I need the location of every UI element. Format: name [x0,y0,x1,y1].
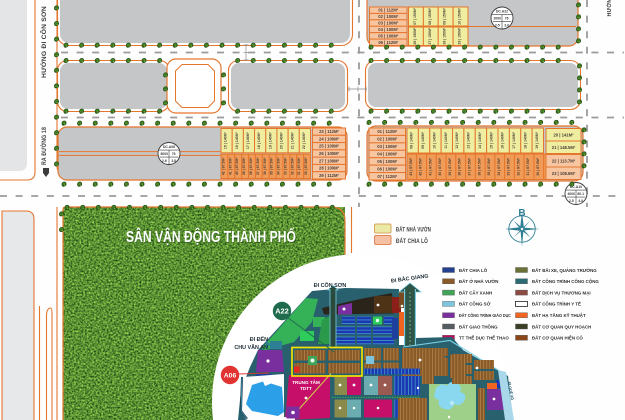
svg-text:ĐI CÔN SƠN: ĐI CÔN SƠN [314,281,347,289]
svg-text:28 | 150M²: 28 | 150M² [443,27,447,45]
svg-text:CHU VĂN AN: CHU VĂN AN [234,344,268,351]
svg-text:24 | 100M²: 24 | 100M² [319,136,340,141]
svg-text:27 | 100M²: 27 | 100M² [319,158,340,163]
svg-text:37 | 87.5M²: 37 | 87.5M² [256,157,260,176]
svg-text:TT THỂ DỤC THỂ THAO: TT THỂ DỤC THỂ THAO [459,336,509,341]
svg-text:ĐẤT CHIA LÔ: ĐẤT CHIA LÔ [459,268,488,273]
svg-text:A22: A22 [275,307,289,316]
svg-text:16 | 140M²: 16 | 140M² [235,132,239,150]
svg-text:16 | 140M²: 16 | 140M² [501,131,505,149]
svg-text:10 | 150M²: 10 | 150M² [458,7,462,25]
svg-text:ĐẤT DỊCH VỤ THƯƠNG MẠI: ĐẤT DỊCH VỤ THƯƠNG MẠI [532,290,591,295]
svg-text:36 | 87.5M²: 36 | 87.5M² [477,157,481,176]
svg-text:8000: 8000 [161,152,169,156]
svg-text:26 | 100M²: 26 | 100M² [319,151,340,156]
svg-text:33 | 87.5M²: 33 | 87.5M² [283,157,287,176]
svg-text:04 | 100M²: 04 | 100M² [377,152,398,157]
svg-text:30 | 87.5M²: 30 | 87.5M² [304,157,308,176]
svg-text:11 | 140M²: 11 | 140M² [444,131,448,148]
svg-text:34 | 87.5M²: 34 | 87.5M² [497,157,501,176]
svg-text:17 | 140M²: 17 | 140M² [246,132,250,150]
svg-text:14 | 140M²: 14 | 140M² [478,131,482,149]
svg-text:ĐI ĐẾN: ĐI ĐẾN [250,336,268,343]
svg-text:3.0: 3.0 [504,23,509,27]
svg-text:HƯỚNG ĐI CÔN SƠN: HƯỚNG ĐI CÔN SƠN [39,6,48,78]
svg-text:ĐẤT HẠ TẦNG KỸ THUẬT: ĐẤT HẠ TẦNG KỸ THUẬT [532,313,586,318]
svg-text:09 | 140M²: 09 | 140M² [421,131,425,149]
svg-text:01 | 112M²: 01 | 112M² [378,8,398,13]
svg-text:A06: A06 [224,373,237,380]
svg-text:ĐẤT CƠ QUAN HIỆN CÓ: ĐẤT CƠ QUAN HIỆN CÓ [532,336,583,341]
svg-text:20 | 141M²: 20 | 141M² [553,132,574,137]
svg-text:ĐẤT CÔNG TRÌNH CÔNG CỘNG: ĐẤT CÔNG TRÌNH CÔNG CỘNG [532,279,599,284]
svg-text:18 | 140M²: 18 | 140M² [257,132,261,150]
svg-text:31 | 87.5M²: 31 | 87.5M² [526,157,530,176]
svg-text:30 | 87.5M²: 30 | 87.5M² [536,157,540,176]
svg-text:40 | 87.5M²: 40 | 87.5M² [235,157,239,176]
svg-text:2-5: 2-5 [495,23,500,27]
svg-text:01 | 112M²: 01 | 112M² [377,129,397,134]
svg-text:2-5: 2-5 [569,199,574,203]
svg-text:37 | 87.5M²: 37 | 87.5M² [467,157,471,176]
svg-text:ĐẤT BÃI XE, QUẢNG TRƯỜNG: ĐẤT BÃI XE, QUẢNG TRƯỜNG [532,268,597,273]
svg-text:35 | 87.5M²: 35 | 87.5M² [487,157,491,176]
svg-text:41 | 87.5M²: 41 | 87.5M² [228,157,232,176]
svg-text:05 | 100M²: 05 | 100M² [377,159,398,164]
svg-text:19 | 140M²: 19 | 140M² [535,131,539,149]
svg-text:TDTT: TDTT [300,386,312,391]
svg-text:38 | 87.5M²: 38 | 87.5M² [458,157,462,176]
svg-text:32 | 87.5M²: 32 | 87.5M² [290,157,294,176]
svg-text:ĐẤT Ở NHÀ VƯỜN: ĐẤT Ở NHÀ VƯỜN [459,279,498,284]
svg-text:ĐẤT GIAO THÔNG: ĐẤT GIAO THÔNG [459,324,498,329]
svg-text:21 | 148.5M²: 21 | 148.5M² [552,145,576,150]
svg-text:40 | 87.5M²: 40 | 87.5M² [438,157,442,176]
svg-text:35 | 87.5M²: 35 | 87.5M² [270,157,274,176]
svg-text:08 | 140M²: 08 | 140M² [410,131,414,149]
svg-text:04 | 100M²: 04 | 100M² [378,27,399,32]
svg-text:15 | 140M²: 15 | 140M² [224,132,228,150]
svg-text:20 | 140M²: 20 | 140M² [280,132,284,150]
svg-text:02 | 100M²: 02 | 100M² [377,137,398,142]
svg-text:22 | 113.7M²: 22 | 113.7M² [552,158,576,163]
svg-text:ĐẤT CÔNG SỞ: ĐẤT CÔNG SỞ [459,302,491,307]
svg-text:29 | 150M²: 29 | 150M² [458,27,462,45]
svg-text:4000: 4000 [568,192,576,196]
svg-text:2-6: 2-6 [162,159,167,163]
svg-text:15 | 140M²: 15 | 140M² [489,131,493,149]
svg-text:43 | 87.5M²: 43 | 87.5M² [409,157,413,176]
svg-text:10 | 140M²: 10 | 140M² [432,131,436,149]
svg-text:SÂN VẬN ĐỘNG THÀNH PHỐ: SÂN VẬN ĐỘNG THÀNH PHỐ [126,226,296,246]
svg-text:TRUNG TÂM: TRUNG TÂM [292,379,320,385]
svg-text:08 | 150M²: 08 | 150M² [428,7,432,25]
svg-text:42 | 87.5M²: 42 | 87.5M² [221,157,225,176]
svg-text:41 | 87.5M²: 41 | 87.5M² [428,157,432,176]
svg-text:25 | 100M²: 25 | 100M² [319,144,340,149]
svg-text:3.8: 3.8 [171,159,176,163]
svg-text:36 | 87.5M²: 36 | 87.5M² [263,157,267,176]
svg-text:06 | 100M²: 06 | 100M² [377,166,398,171]
svg-text:23 | 108.6M²: 23 | 108.6M² [552,171,576,176]
svg-text:ĐẤT CƠ QUAN QUY HOẠCH: ĐẤT CƠ QUAN QUY HOẠCH [532,324,591,329]
svg-text:ĐẤT CÔNG TRÌNH GIÁO DỤC: ĐẤT CÔNG TRÌNH GIÁO DỤC [459,313,512,318]
svg-text:39 | 87.5M²: 39 | 87.5M² [242,157,246,176]
svg-text:34 | 87.5M²: 34 | 87.5M² [277,157,281,176]
svg-text:76: 76 [505,17,509,21]
svg-text:05 | 100M²: 05 | 100M² [378,33,399,38]
svg-text:03 | 100M²: 03 | 100M² [378,21,399,26]
svg-text:27 | 150M²: 27 | 150M² [428,27,432,45]
svg-text:06 | 112M²: 06 | 112M² [378,40,398,45]
svg-text:39 | 87.5M²: 39 | 87.5M² [448,157,452,176]
svg-text:RA ĐƯỜNG 18: RA ĐƯỜNG 18 [39,127,48,165]
svg-text:B: B [518,208,525,219]
svg-text:22 | 140M²: 22 | 140M² [302,132,306,150]
svg-text:07 | 150M²: 07 | 150M² [413,7,417,25]
svg-text:ĐẤT CÂY XANH: ĐẤT CÂY XANH [459,290,492,295]
svg-text:42 | 87.5M²: 42 | 87.5M² [419,157,423,176]
svg-text:2000: 2000 [494,17,502,21]
svg-text:07 | 112M²: 07 | 112M² [377,174,397,179]
svg-text:38 | 87.5M²: 38 | 87.5M² [249,157,253,176]
svg-text:HƯỚNG ĐI BẮC GIANG: HƯỚNG ĐI BẮC GIANG [605,0,613,17]
svg-text:28 | 100M²: 28 | 100M² [319,166,340,171]
svg-text:12 | 140M²: 12 | 140M² [455,131,459,149]
svg-text:80.1: 80.1 [577,192,584,196]
svg-text:21 | 140M²: 21 | 140M² [291,132,295,150]
svg-text:13 | 140M²: 13 | 140M² [467,131,471,149]
svg-text:ĐẤT CÔNG TRÌNH Y TẾ: ĐẤT CÔNG TRÌNH Y TẾ [532,302,581,307]
svg-text:23 | 112M²: 23 | 112M² [319,129,339,134]
svg-text:17 | 140M²: 17 | 140M² [512,131,516,149]
svg-text:33 | 87.5M²: 33 | 87.5M² [507,157,511,176]
svg-text:19 | 140M²: 19 | 140M² [268,132,272,150]
svg-text:31 | 87.5M²: 31 | 87.5M² [297,157,301,176]
svg-text:03 | 100M²: 03 | 100M² [377,144,398,149]
svg-text:76: 76 [172,152,176,156]
svg-text:29 | 112M²: 29 | 112M² [319,173,339,178]
svg-text:09 | 150M²: 09 | 150M² [443,7,447,25]
svg-text:DC.A08: DC.A08 [163,145,175,149]
svg-text:4.0: 4.0 [578,199,583,203]
svg-text:DC.A22: DC.A22 [496,9,508,13]
svg-text:18 | 140M²: 18 | 140M² [523,131,527,149]
svg-text:26 | 150M²: 26 | 150M² [413,27,417,45]
svg-text:02 | 100M²: 02 | 100M² [378,14,399,19]
svg-text:32 | 87.5M²: 32 | 87.5M² [516,157,520,176]
